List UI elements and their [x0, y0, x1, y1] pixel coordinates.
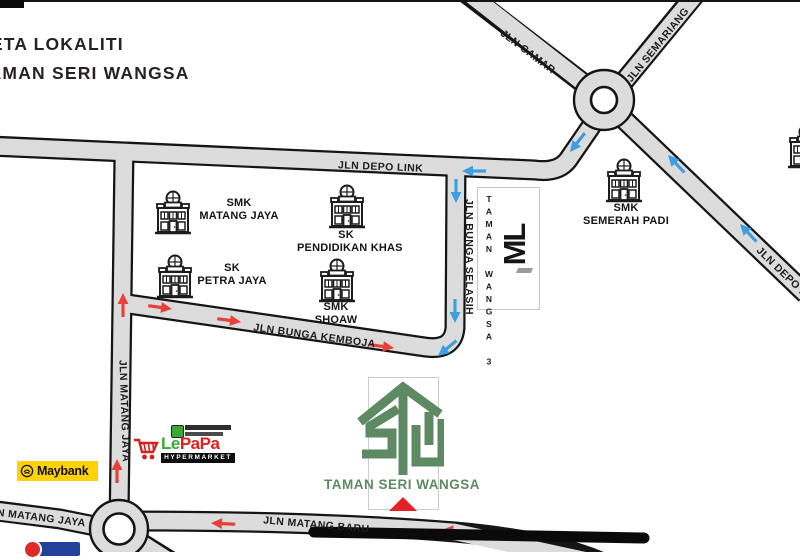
locality-map-page: { "title": { "line1": "PETA LOKALITI", "…	[0, 0, 800, 552]
corner-logo-red-circle	[23, 540, 42, 559]
school-label-sk-petra-jaya: SK PETRA JAYA	[195, 262, 269, 287]
map-title-line2: TAMAN SERI WANGSA	[0, 59, 190, 88]
maybank-logo: Maybank	[17, 461, 98, 481]
taman-wangsa-3-box: TAMAN WANGSA 3 ML	[477, 187, 540, 310]
school-icon-sk-pendidikan-khas	[327, 184, 367, 230]
school-label-smk-semerah-padi: SMK SEMERAH PADI	[575, 202, 677, 227]
developer-logo-accent	[516, 268, 533, 273]
maybank-tiger-icon	[20, 464, 34, 478]
taman-seri-wangsa-logo-text: TAMAN SERI WANGSA	[322, 477, 482, 492]
school-icon-smk-semerah-padi	[604, 158, 644, 204]
school-icon-smk-matang-jaya	[153, 190, 193, 236]
taman-seri-wangsa-logo-icon	[356, 379, 444, 477]
map-title-line1: PETA LOKALITI	[0, 30, 190, 59]
bottom-roundabout	[90, 500, 148, 552]
top-roundabout	[574, 70, 634, 130]
shopping-cart-icon	[132, 435, 160, 463]
school-icon-smk-shoaw	[317, 258, 357, 304]
maybank-label: Maybank	[37, 464, 88, 478]
building-icon-right-edge	[786, 124, 800, 170]
map-title: PETA LOKALITI TAMAN SERI WANGSA	[0, 30, 190, 88]
school-label-smk-matang-jaya: SMK MATANG JAYA	[195, 197, 283, 222]
road-label-jln-bunga-selasih: JLN BUNGA SELASIH	[463, 199, 475, 315]
hypermarket-label: HYPERMARKET	[161, 453, 235, 463]
lepapa-wordmark: LePaPa	[161, 434, 219, 454]
school-label-smk-shoaw: SMK SHOAW	[304, 301, 368, 326]
school-label-sk-pendidikan-khas: SK PENDIDIKAN KHAS	[297, 229, 395, 254]
lepapa-hypermarket-logo: LePaPa HYPERMARKET	[130, 421, 240, 464]
location-marker-triangle	[389, 497, 417, 511]
developer-logo: ML	[492, 222, 538, 268]
top-left-mark	[0, 0, 24, 8]
school-icon-sk-petra-jaya	[155, 254, 195, 300]
corner-store-logo	[23, 540, 81, 560]
